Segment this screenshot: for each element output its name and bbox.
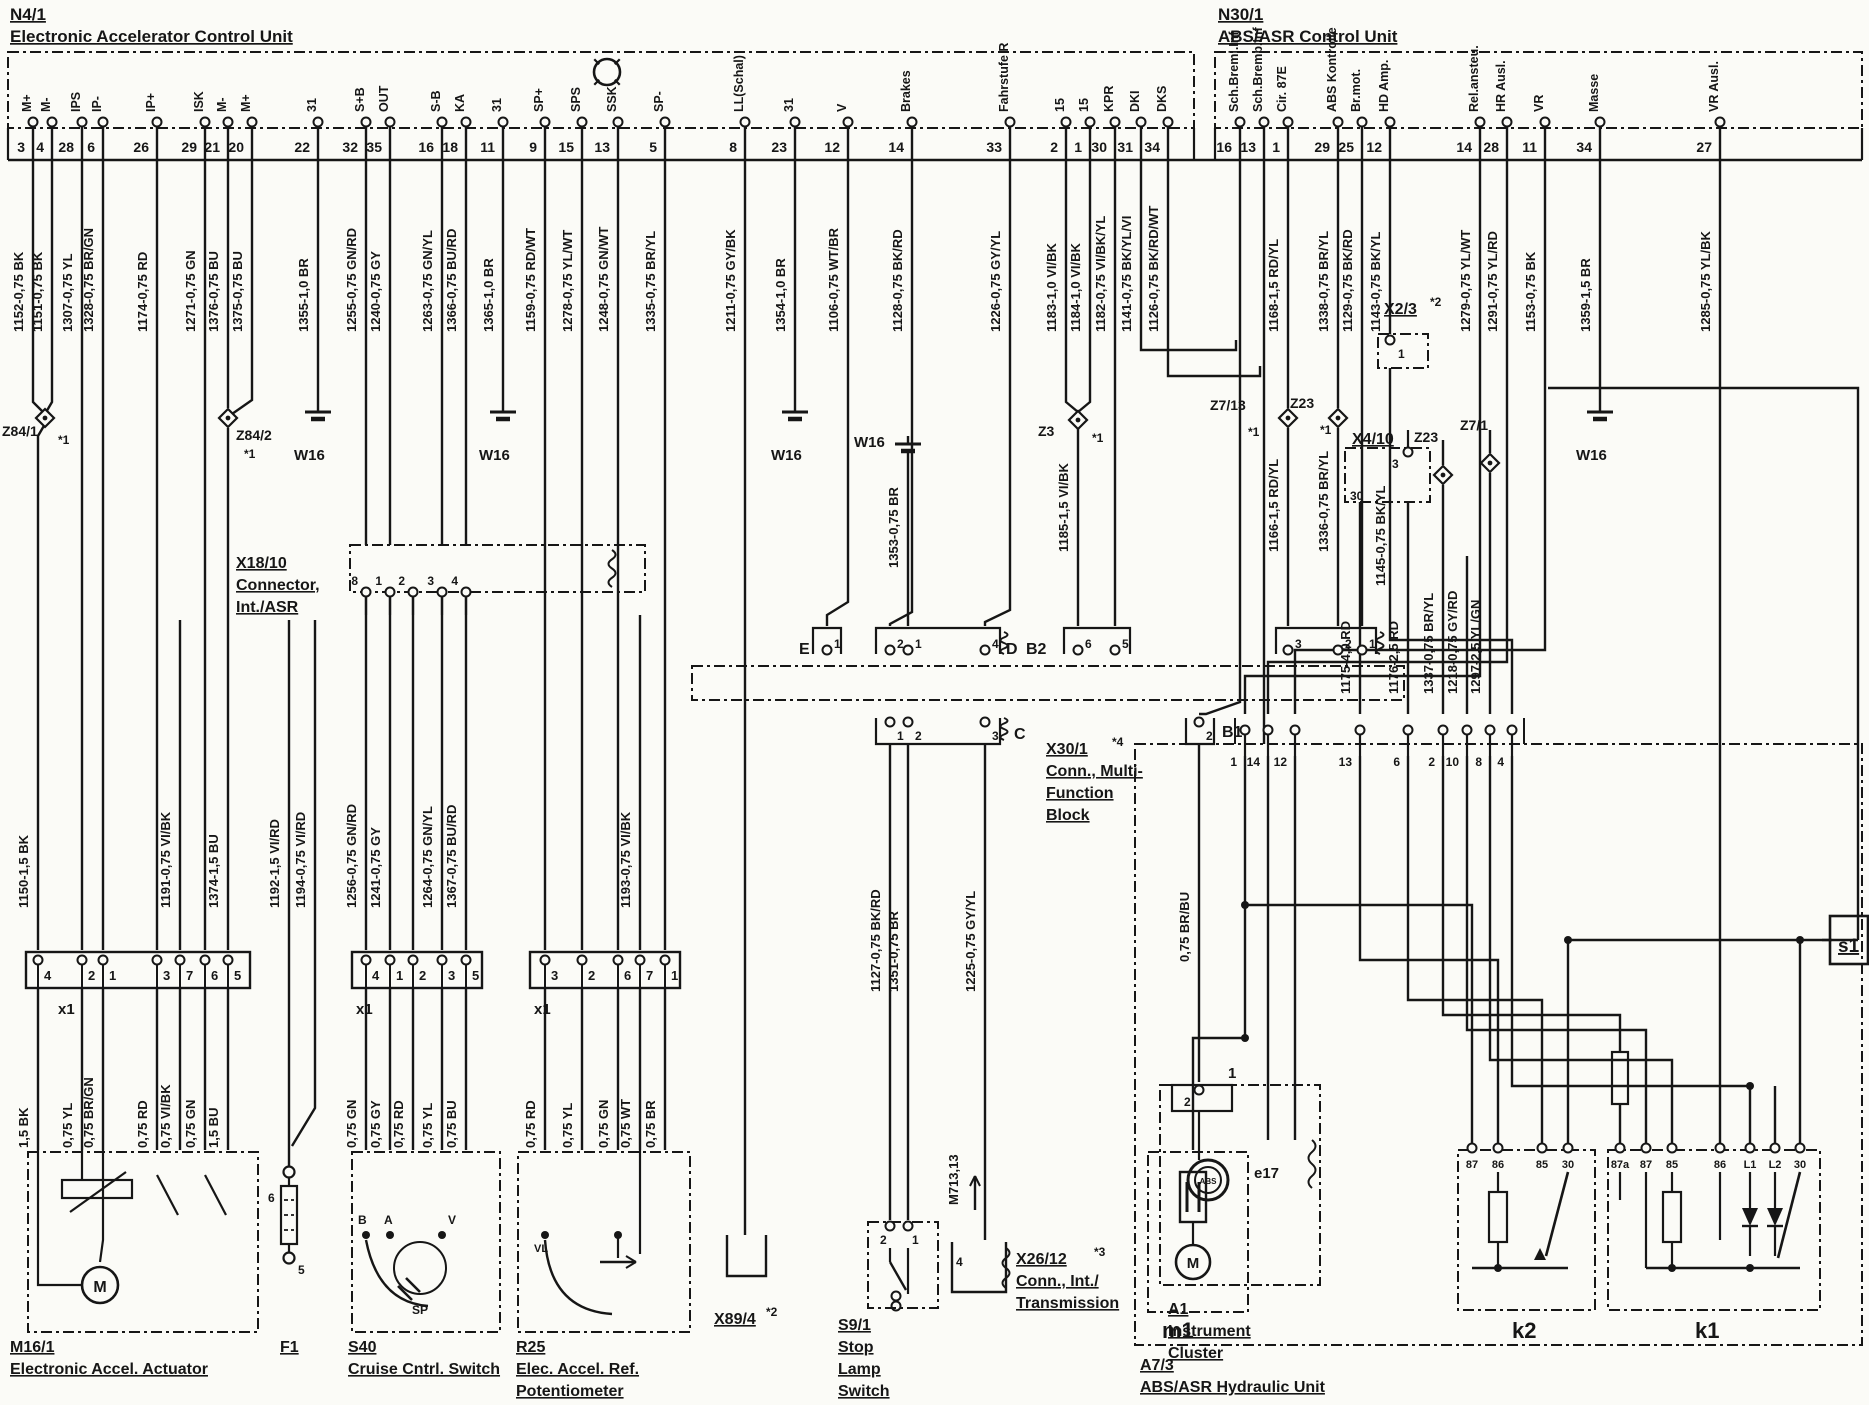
wire-label: 1307-0,75 YL: [60, 253, 75, 332]
k2-box: [1458, 1150, 1595, 1310]
wire-label: 1353-0,75 BR: [886, 486, 901, 568]
pin-label: OUT: [377, 85, 391, 112]
wire-label: 1248-0,75 GN/WT: [596, 226, 611, 332]
wire-label: 1127-0,75 BK/RD: [868, 889, 883, 992]
pin-number: 30: [1091, 139, 1107, 155]
pin-icon: [499, 118, 508, 127]
relay-coil-icon: [1663, 1192, 1681, 1242]
plain-label: x1: [534, 1001, 551, 1018]
wire: [1467, 756, 1646, 1146]
potentiometer-arc: [545, 1240, 612, 1314]
wire-label: 0,75 BU: [444, 1100, 459, 1148]
relay-pin-icon: [1716, 1144, 1725, 1153]
switch-arc: [366, 1240, 428, 1306]
switch-contact: [205, 1175, 226, 1215]
connector-pin-icon: [1195, 718, 1204, 727]
component-caption: Cluster: [1168, 1345, 1223, 1362]
pin-number: 25: [1338, 139, 1354, 155]
diode-icon: [1767, 1208, 1783, 1226]
pin-number: 16: [418, 139, 434, 155]
plain-label: Z3: [1038, 423, 1055, 439]
pin-label: V: [835, 103, 849, 112]
pin-label: Fahrstufe R: [997, 43, 1011, 112]
plain-label: *1: [58, 433, 70, 447]
relay-pin-number: 86: [1492, 1159, 1504, 1171]
terminal-icon: [892, 1292, 901, 1301]
k1-box: [1608, 1150, 1820, 1310]
wire-label: 0,75 GN: [183, 1100, 198, 1148]
plain-label: W16: [294, 447, 325, 464]
connector-pin-number: 2: [419, 968, 426, 983]
plain-label: B1: [1222, 724, 1243, 741]
relay-pin-number: L1: [1744, 1159, 1757, 1171]
pin-icon: [741, 118, 750, 127]
pin-label: Sch.Bremb.Inf: [1251, 26, 1265, 112]
wire-label: 0,75 BR: [643, 1100, 658, 1148]
connector-pin-number: 1: [1369, 637, 1376, 651]
connector-pin-icon: [578, 956, 587, 965]
plain-label: E: [799, 641, 810, 658]
connector-pin-icon: [1195, 1086, 1204, 1095]
pin-icon: [1358, 118, 1367, 127]
pin-icon: [78, 118, 87, 127]
pin-number: 6: [87, 139, 95, 155]
pin-label: M+: [239, 94, 253, 112]
unit-title: N30/1: [1218, 5, 1263, 24]
junction-dot: [362, 1231, 370, 1239]
connector-pin-number: 2: [88, 968, 95, 983]
relay-switch: [1778, 1172, 1800, 1258]
wire: [1199, 160, 1240, 714]
component-caption: X18/10: [236, 555, 287, 572]
component-caption: S9/1: [838, 1317, 871, 1334]
pin-icon: [1006, 118, 1015, 127]
connector-pin-number: 1: [109, 968, 116, 983]
plain-label: Z84/1: [2, 423, 38, 439]
junction-dot: [1746, 1264, 1754, 1272]
plain-label: W16: [1576, 447, 1607, 464]
pin-icon: [1236, 118, 1245, 127]
connector-pin-icon: [981, 646, 990, 655]
connector-pin-number: 1: [671, 968, 678, 983]
connector-pin-icon: [886, 718, 895, 727]
connector-pin-number: 5: [234, 968, 241, 983]
splice-dot: [43, 416, 48, 421]
connector-pin-icon: [1264, 726, 1273, 735]
wire: [1168, 160, 1260, 376]
wire-label: 1241-0,75 GY: [368, 827, 383, 908]
wire-label: 1359-1,5 BR: [1578, 258, 1593, 332]
plain-label: *1: [1248, 425, 1260, 439]
component-caption: ABS/ASR Hydraulic Unit: [1140, 1379, 1326, 1396]
switch-dial-icon: [394, 1242, 446, 1294]
pin-label: Br.mot.: [1349, 69, 1363, 112]
plain-label: k1: [1695, 1318, 1719, 1343]
pin-icon: [844, 118, 853, 127]
connector-pin-number: 1: [1230, 755, 1237, 769]
pin-label: Brakes: [899, 70, 913, 112]
connector-pin-number: 12: [1274, 755, 1288, 769]
component-caption: Cruise Cntrl. Switch: [348, 1361, 500, 1378]
relay-pin-icon: [1668, 1144, 1677, 1153]
pin-icon: [438, 118, 447, 127]
connector-pin-icon: [1356, 726, 1365, 735]
connector-pin-icon: [409, 588, 418, 597]
wire-label: 1,5 BU: [206, 1108, 221, 1148]
pin-number: 8: [729, 139, 737, 155]
pin-label: KPR: [1102, 86, 1116, 112]
pin-icon: [99, 118, 108, 127]
component-caption: Stop: [838, 1339, 874, 1356]
switch-contact: [890, 1262, 906, 1290]
pin-icon: [908, 118, 917, 127]
pin-icon: [791, 118, 800, 127]
wiper-arrow: [70, 1172, 126, 1212]
wire-label: 1168-1,5 RD/YL: [1266, 239, 1281, 332]
connector-pin-number: 5: [1122, 637, 1129, 651]
break-squiggle: [1001, 718, 1008, 740]
relay-pin-number: 87: [1466, 1159, 1478, 1171]
connector-pin-icon: [386, 956, 395, 965]
pin-label: M-: [215, 97, 229, 112]
pin-icon: [614, 118, 623, 127]
pin-label: Rel.ansteu.: [1467, 45, 1481, 112]
splice-dot: [1488, 461, 1493, 466]
pin-label: 31: [305, 98, 319, 112]
wire-label: 1218-0,75 GY/RD: [1445, 591, 1460, 694]
component-caption: Function: [1046, 785, 1114, 802]
plain-label: Z7/13: [1210, 397, 1246, 413]
pin-icon: [1334, 118, 1343, 127]
wire-label: M713,13: [946, 1154, 961, 1205]
pin-number: 4: [36, 139, 44, 155]
wire-label: 1192-1,5 VI/RD: [267, 819, 282, 908]
connector-pin-icon: [1386, 336, 1395, 345]
wire: [1360, 756, 1498, 1146]
connector-pin-icon: [386, 588, 395, 597]
wire-label: 1264-0,75 GN/YL: [420, 806, 435, 908]
potentiometer-icon: [62, 1180, 132, 1198]
component-caption: X2/3: [1384, 301, 1417, 318]
connector-pin-number: 3: [427, 574, 434, 588]
wire: [100, 1150, 103, 1262]
component-caption: X4/10: [1352, 431, 1394, 448]
wire-label: 1106-0,75 WT/BR: [826, 227, 841, 332]
wire-label: 1271-0,75 GN: [183, 250, 198, 332]
pin-icon: [1541, 118, 1550, 127]
splice-dot: [226, 416, 231, 421]
pin-icon: [661, 118, 670, 127]
pin-label: IPS: [69, 92, 83, 112]
wire-label: 0,75 YL: [60, 1103, 75, 1148]
connector-pin-number: 2: [588, 968, 595, 983]
wire-label: 1365-1,0 BR: [481, 258, 496, 332]
pin-label: VR Ausl.: [1707, 61, 1721, 112]
pin-icon: [153, 118, 162, 127]
relay-pin-icon: [1494, 1144, 1503, 1153]
pin-number: 13: [594, 139, 610, 155]
relay-pin-number: 87: [1640, 1159, 1652, 1171]
footnote: *4: [1112, 735, 1124, 749]
plain-label: k2: [1512, 1318, 1536, 1343]
plain-label: Z84/2: [236, 427, 272, 443]
pin-icon: [1386, 118, 1395, 127]
relay-pin-icon: [1564, 1144, 1573, 1153]
pin-icon: [1260, 118, 1269, 127]
connector-pin-icon: [823, 646, 832, 655]
plain-label: W16: [771, 447, 802, 464]
connector-pin-number: 8: [1475, 755, 1482, 769]
wire-label: 1150-1,5 BK: [16, 834, 31, 908]
wire: [1548, 388, 1858, 940]
connector-pin-number: 3: [992, 729, 999, 743]
pin-label: DKS: [1155, 86, 1169, 112]
connector-pin-number: 3: [1295, 637, 1302, 651]
pin-number: 15: [558, 139, 574, 155]
component-caption: X26/12: [1016, 1251, 1067, 1268]
wire-label: 0,75 RD: [391, 1100, 406, 1148]
connector-pin-icon: [99, 956, 108, 965]
pin-number: 1: [1074, 139, 1082, 155]
plain-label: 4: [956, 1255, 963, 1269]
pin-icon: [1086, 118, 1095, 127]
n41-box: [8, 52, 1194, 128]
wire-label: 0,75 BR/GN: [81, 1077, 96, 1148]
pin-number: 13: [1240, 139, 1256, 155]
fuse-terminal: [284, 1167, 295, 1178]
component-caption: Lamp: [838, 1361, 881, 1378]
wire-label: 0,75 BR/BU: [1177, 892, 1192, 962]
connector-pin-number: 3: [551, 968, 558, 983]
connector-pin-number: 2: [398, 574, 405, 588]
pin-icon: [1476, 118, 1485, 127]
wire-label: 0,75 GY: [368, 1100, 383, 1148]
plain-label: Z23: [1414, 429, 1438, 445]
wire-label: 1,5 BK: [16, 1107, 31, 1148]
wiring-diagram-page: N4/1Electronic Accelerator Control UnitN…: [0, 0, 1869, 1405]
wire-label: 1255-0,75 GN/RD: [344, 228, 359, 332]
footnote: *3: [1094, 1245, 1106, 1259]
pin-icon: [1716, 118, 1725, 127]
relay-pin-number: 85: [1666, 1159, 1678, 1171]
component-caption: Int./ASR: [236, 599, 299, 616]
connector-pin-icon: [153, 956, 162, 965]
pin-label: 31: [490, 98, 504, 112]
pin-number: 2: [1050, 139, 1058, 155]
footnote: *2: [766, 1305, 778, 1319]
connector-pin-number: 1: [396, 968, 403, 983]
plain-label: 5: [298, 1263, 305, 1277]
pin-number: 11: [480, 139, 495, 155]
wire-label: 1145-0,75 BK/YL: [1373, 485, 1388, 586]
pin-number: 21: [204, 139, 220, 155]
wire: [1245, 905, 1472, 1146]
pin-icon: [1596, 118, 1605, 127]
component-caption: S40: [348, 1339, 377, 1356]
wire-label: 1225-0,75 GY/YL: [963, 891, 978, 992]
connector-pin-icon: [462, 588, 471, 597]
connector-pin-icon: [462, 956, 471, 965]
relay-pin-icon: [1796, 1144, 1805, 1153]
junction-dot: [1796, 936, 1804, 944]
junction-dot: [1668, 1264, 1676, 1272]
relay-pin-number: 86: [1714, 1159, 1726, 1171]
connector-pin-number: 5: [472, 968, 479, 983]
connector-pin-icon: [1439, 726, 1448, 735]
pin-label: KA: [453, 94, 467, 112]
component-caption: Conn., Int./: [1016, 1273, 1099, 1290]
pin-label: S-B: [429, 90, 443, 112]
plain-label: W16: [479, 447, 510, 464]
plain-label: 1: [1398, 347, 1405, 361]
wire-label: 1185-1,5 VI/BK: [1056, 463, 1071, 552]
junction-dot: [1564, 936, 1572, 944]
wire: [45, 160, 52, 414]
component-caption: Transmission: [1016, 1295, 1119, 1312]
pin-number: 26: [133, 139, 149, 155]
connector-pin-icon: [176, 956, 185, 965]
component-caption: Elec. Accel. Ref.: [516, 1361, 639, 1378]
pin-number: 27: [1696, 139, 1712, 155]
wire-label: 0,75 YL: [560, 1103, 575, 1148]
pin-number: 23: [771, 139, 787, 155]
wire-label: 0,75 YL: [420, 1103, 435, 1148]
connector-pin-icon: [438, 588, 447, 597]
unit-title: Electronic Accelerator Control Unit: [10, 27, 293, 46]
wire-label: 1335-0,75 BR/YL: [643, 231, 658, 332]
pin-number: 31: [1117, 139, 1133, 155]
pin-label: Cir. 87E: [1275, 66, 1289, 112]
footnote: *2: [1430, 295, 1442, 309]
connector-pin-number: 6: [1085, 637, 1092, 651]
connector-pin-number: 4: [1497, 755, 1504, 769]
wire-label: 1191-0,75 VI/BK: [158, 811, 173, 908]
component-caption: M16/1: [10, 1339, 55, 1356]
pin-label: HR Ausl.: [1494, 60, 1508, 112]
pin-icon: [224, 118, 233, 127]
wire-label: 1336-0,75 BR/YL: [1316, 451, 1331, 552]
pin-label: Sch.Breml.Inf: [1227, 31, 1241, 112]
pin-number: 12: [824, 139, 840, 155]
plain-label: W16: [854, 434, 885, 451]
component-caption: Connector,: [236, 577, 320, 594]
connector-pin-icon: [1486, 726, 1495, 735]
connector-pin-number: 14: [1247, 755, 1261, 769]
relay-pin-number: 87a: [1611, 1159, 1630, 1171]
diode-icon: [1742, 1208, 1758, 1226]
pin-icon: [1111, 118, 1120, 127]
wire-label: 1184-1,0 VI/BK: [1068, 243, 1083, 332]
s40-terminal-letter: B: [358, 1213, 367, 1227]
relay-pin-number: L2: [1769, 1159, 1782, 1171]
wire-label: 1351-0,75 BR: [886, 910, 901, 992]
pin-label: M-: [39, 97, 53, 112]
pin-label: IP-: [90, 96, 104, 112]
relay-pin-number: 30: [1794, 1159, 1806, 1171]
connector-pin-number: 3: [163, 968, 170, 983]
splice-dot: [1076, 418, 1081, 423]
connector-pin-icon: [34, 956, 43, 965]
wire-label: 1174-0,75 RD: [135, 252, 150, 332]
wire-label: 0,75 RD: [135, 1100, 150, 1148]
junction-dot: [1241, 901, 1249, 909]
pin-number: 34: [1144, 139, 1160, 155]
connector-pin-number: 7: [186, 968, 193, 983]
switch-contact: [157, 1175, 178, 1215]
relay-switch: [1546, 1172, 1568, 1256]
connector-pin-icon: [409, 956, 418, 965]
connector-pin-icon: [904, 1222, 913, 1231]
wire-label: 1159-0,75 RD/WT: [523, 228, 538, 332]
wire-label: 1291-0,75 YL/RD: [1485, 231, 1500, 332]
wire-label: 1152-0,75 BK: [11, 251, 26, 332]
pin-label: SPS: [569, 87, 583, 112]
pin-label: SP+: [532, 88, 546, 112]
wire-label: 1193-0,75 VI/BK: [618, 811, 633, 908]
wire: [38, 424, 45, 950]
m1-box: [1148, 1152, 1248, 1312]
wire-label: 1337-0,75 BR/YL: [1421, 593, 1436, 694]
pin-icon: [248, 118, 257, 127]
plain-label: *1: [1092, 431, 1104, 445]
pin-icon: [578, 118, 587, 127]
pin-icon: [29, 118, 38, 127]
wire-label: 1256-0,75 GN/RD: [344, 804, 359, 908]
wire: [1512, 756, 1750, 1146]
component-caption: F1: [280, 1339, 299, 1356]
wire-label: 0,75 GN: [596, 1100, 611, 1148]
pin-number: 28: [1483, 139, 1499, 155]
component-caption: Conn., Multi-: [1046, 763, 1143, 780]
wire-label: 0,75 VI/BK: [158, 1084, 173, 1148]
plain-label: m1: [1162, 1318, 1194, 1343]
wire-label: 1375-0,75 BU: [230, 251, 245, 332]
connector-pin-number: 13: [1339, 755, 1353, 769]
connector-pin-icon: [1404, 726, 1413, 735]
pin-number: 20: [228, 139, 244, 155]
pin-label: M+: [20, 94, 34, 112]
wire-label: 1240-0,75 GY: [368, 251, 383, 332]
connector-pin-icon: [981, 718, 990, 727]
splice-dot: [1336, 416, 1341, 421]
pin-number: 34: [1576, 139, 1592, 155]
splice-dot: [1441, 473, 1446, 478]
wire-label: 1226-0,75 GY/YL: [988, 231, 1003, 332]
pin-number: 29: [1314, 139, 1330, 155]
relay-pin-icon: [1538, 1144, 1547, 1153]
pin-icon: [1284, 118, 1293, 127]
pin-label: SP-: [652, 91, 666, 112]
wire-label: 1278-0,75 YL/WT: [560, 230, 575, 332]
junction-dot: [438, 1231, 446, 1239]
pin-label: VR: [1532, 95, 1546, 112]
wire-label: 1176-2,5 RD: [1386, 621, 1401, 694]
plain-label: B2: [1026, 641, 1047, 658]
relay-pin-icon: [1616, 1144, 1625, 1153]
connector-pin-icon: [78, 956, 87, 965]
x18-10-connector: [350, 545, 645, 592]
connector-pin-number: 4: [372, 968, 380, 983]
wire: [985, 160, 1010, 626]
relay-pin-number: 30: [1562, 1159, 1574, 1171]
connector-pin-number: 1: [375, 574, 382, 588]
pin-number: 14: [888, 139, 904, 155]
wire-label: 0,75 RD: [523, 1100, 538, 1148]
relay-coil-icon: [1489, 1192, 1507, 1242]
connector-pin-icon: [904, 718, 913, 727]
wire-label: 1328-0,75 BR/GN: [81, 228, 96, 332]
connector-pin-icon: [1284, 646, 1293, 655]
